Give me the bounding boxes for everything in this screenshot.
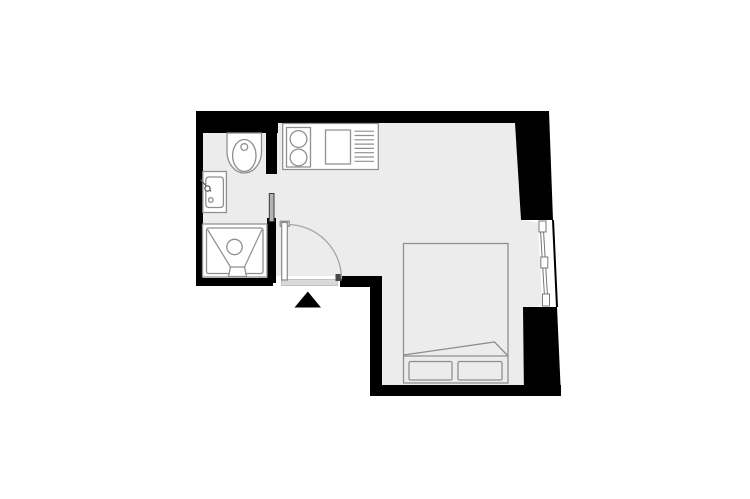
shower-valve: [227, 239, 242, 254]
washbasin-drain: [209, 198, 214, 203]
burner: [290, 131, 307, 148]
window-mullion: [543, 294, 550, 306]
threshold: [282, 280, 338, 286]
sliding-door-leaf: [269, 194, 274, 222]
burner: [290, 149, 307, 166]
wall-top-bathroom: [196, 111, 278, 133]
wall-right-upper: [515, 111, 553, 220]
washbasin-bowl: [206, 177, 224, 208]
faucet-knob: [205, 186, 210, 191]
wall-divider-lower: [267, 218, 276, 283]
kitchen: [283, 124, 379, 170]
entrance-marker: [295, 292, 322, 308]
toilet: [227, 133, 262, 173]
wall-top-kitchen: [278, 111, 549, 123]
washbasin: [201, 172, 227, 213]
floor-plan-canvas: [0, 0, 750, 499]
wall-divider-upper: [266, 111, 277, 174]
shower: [203, 224, 268, 277]
wall-bottom: [370, 385, 561, 396]
wall-step: [370, 276, 382, 391]
entrance-door-leaf: [282, 223, 288, 281]
double-bed: [404, 244, 509, 384]
toilet-flush-button: [241, 144, 248, 151]
wall-right-lower: [523, 307, 561, 396]
window-mullion: [541, 257, 548, 268]
wall-bathroom-bottom: [196, 278, 273, 286]
window-mullion: [539, 221, 546, 232]
kitchen-sink: [326, 130, 351, 164]
shower-drain-channel: [229, 267, 247, 277]
